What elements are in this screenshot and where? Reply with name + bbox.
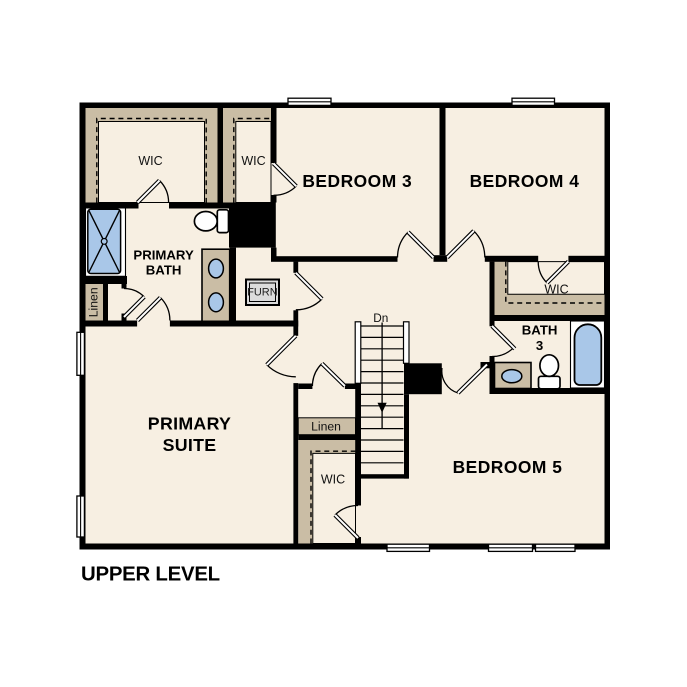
svg-text:SUITE: SUITE [163,435,217,455]
svg-text:BEDROOM 3: BEDROOM 3 [302,171,412,191]
svg-text:BATH: BATH [522,323,558,338]
svg-text:PRIMARY: PRIMARY [133,247,194,262]
svg-text:WIC: WIC [321,472,345,486]
svg-text:WIC: WIC [241,154,265,168]
svg-text:BEDROOM 5: BEDROOM 5 [453,457,563,477]
svg-text:Linen: Linen [87,287,101,317]
svg-text:3: 3 [536,338,543,353]
svg-text:FURN: FURN [247,286,278,298]
svg-text:PRIMARY: PRIMARY [148,413,231,433]
svg-text:WIC: WIC [138,154,162,168]
svg-text:Linen: Linen [311,419,341,433]
svg-text:BEDROOM 4: BEDROOM 4 [470,171,580,191]
svg-text:UPPER LEVEL: UPPER LEVEL [81,564,220,586]
svg-text:BATH: BATH [146,262,182,277]
svg-text:WIC: WIC [544,282,568,296]
svg-text:Dn: Dn [373,311,388,325]
